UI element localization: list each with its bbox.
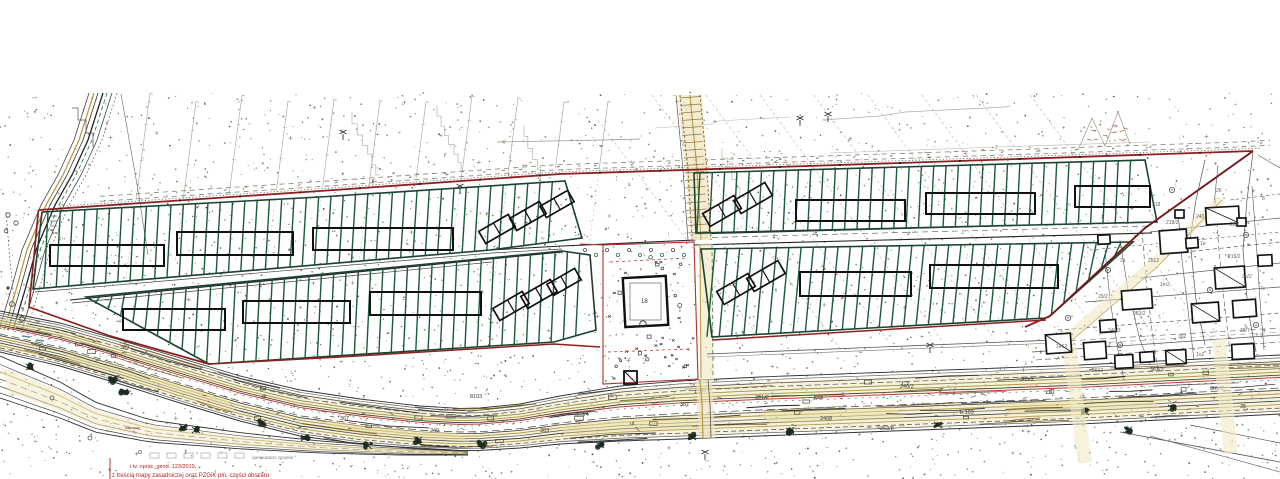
svg-text:369: 369 xyxy=(120,345,129,351)
svg-text:1m2: 1m2 xyxy=(1160,282,1170,288)
svg-text:363/8: 363/8 xyxy=(880,426,894,432)
svg-text:1462: 1462 xyxy=(1056,344,1067,350)
svg-text:367: 367 xyxy=(340,416,349,422)
svg-text:2408: 2408 xyxy=(820,416,832,422)
svg-text:i tv. oprac. geod. 123/2019: i tv. oprac. geod. 123/2019 xyxy=(130,464,195,470)
svg-text:1o2: 1o2 xyxy=(1196,352,1205,358)
svg-text:363/2: 363/2 xyxy=(1020,377,1034,383)
svg-text:26/1: 26/1 xyxy=(1230,222,1240,228)
svg-text:218: 218 xyxy=(1152,202,1161,208)
svg-text:387: 387 xyxy=(680,402,689,408)
svg-text:7e: 7e xyxy=(1260,286,1266,292)
svg-text:8103: 8103 xyxy=(470,394,482,400)
svg-text:b.103: b.103 xyxy=(960,410,974,416)
svg-text:218/2: 218/2 xyxy=(1166,220,1179,226)
svg-text:240/3: 240/3 xyxy=(1108,328,1121,334)
svg-text:8: 8 xyxy=(1262,196,1265,202)
svg-text:363/2: 363/2 xyxy=(1133,311,1146,317)
svg-text:302: 302 xyxy=(1178,334,1187,340)
svg-text:35: 35 xyxy=(1240,404,1246,410)
svg-text:dr: dr xyxy=(262,394,267,400)
svg-text:240: 240 xyxy=(430,428,439,434)
svg-text:1e: 1e xyxy=(1200,241,1206,247)
svg-text:26: 26 xyxy=(1216,188,1222,194)
svg-text:2a: 2a xyxy=(1120,258,1126,264)
svg-text:2512: 2512 xyxy=(1148,258,1159,264)
svg-text:363: 363 xyxy=(540,428,549,434)
svg-text:29/2: 29/2 xyxy=(1098,294,1108,300)
svg-text:ul.: ul. xyxy=(630,421,636,427)
svg-text:3612: 3612 xyxy=(1092,368,1103,374)
svg-text:363/3: 363/3 xyxy=(1150,367,1164,373)
svg-text:18: 18 xyxy=(641,299,648,305)
svg-text:3b/2: 3b/2 xyxy=(1242,274,1252,280)
svg-text:363/4: 363/4 xyxy=(575,412,589,418)
svg-text:35/7: 35/7 xyxy=(1240,328,1250,334)
svg-text:240/2: 240/2 xyxy=(900,384,914,390)
svg-text:z treścią mapy zasadniczej ora: z treścią mapy zasadniczej oraz PZGiK pł… xyxy=(112,473,269,479)
svg-text:219/2: 219/2 xyxy=(1228,254,1241,260)
svg-text:240: 240 xyxy=(1196,214,1205,220)
svg-text:361/2: 361/2 xyxy=(755,395,769,401)
svg-text:opracowano zgodnie: opracowano zgodnie xyxy=(252,455,294,460)
svg-text:7: 7 xyxy=(1260,334,1263,340)
